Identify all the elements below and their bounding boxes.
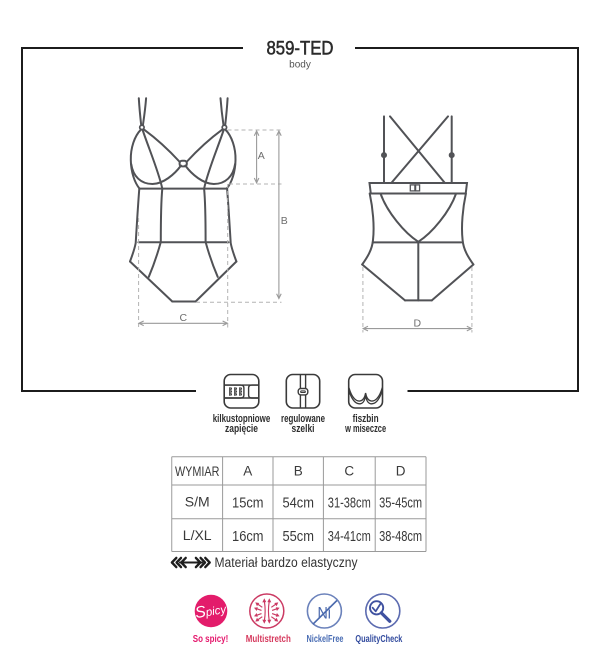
svg-text:B: B bbox=[294, 464, 303, 479]
svg-text:31-38cm: 31-38cm bbox=[328, 496, 371, 512]
svg-text:w miseczce: w miseczce bbox=[344, 423, 386, 435]
svg-text:15cm: 15cm bbox=[232, 496, 264, 512]
svg-text:szelki: szelki bbox=[292, 423, 315, 435]
svg-text:C: C bbox=[180, 312, 188, 324]
svg-text:So spicy!: So spicy! bbox=[193, 634, 229, 645]
svg-text:34-41cm: 34-41cm bbox=[328, 529, 371, 545]
svg-text:QualityCheck: QualityCheck bbox=[355, 634, 402, 645]
svg-text:35-45cm: 35-45cm bbox=[379, 496, 422, 512]
svg-text:S/M: S/M bbox=[185, 494, 210, 510]
svg-text:zapięcie: zapięcie bbox=[225, 423, 258, 435]
svg-text:55cm: 55cm bbox=[282, 529, 314, 545]
svg-text:NickelFree: NickelFree bbox=[307, 634, 344, 645]
svg-text:WYMIAR: WYMIAR bbox=[175, 464, 220, 479]
svg-text:D: D bbox=[396, 464, 406, 479]
svg-text:A: A bbox=[258, 150, 265, 162]
svg-text:38-48cm: 38-48cm bbox=[379, 529, 422, 545]
svg-text:Materiał bardzo elastyczny: Materiał bardzo elastyczny bbox=[215, 555, 358, 570]
svg-text:16cm: 16cm bbox=[232, 529, 264, 545]
svg-text:B: B bbox=[281, 215, 288, 227]
svg-text:859-TED: 859-TED bbox=[267, 39, 334, 60]
svg-text:D: D bbox=[414, 317, 422, 329]
svg-text:Multistretch: Multistretch bbox=[246, 634, 291, 645]
svg-text:54cm: 54cm bbox=[282, 496, 314, 512]
svg-text:A: A bbox=[243, 464, 252, 479]
svg-text:L/XL: L/XL bbox=[183, 527, 212, 543]
svg-text:body: body bbox=[289, 60, 311, 71]
svg-text:C: C bbox=[344, 464, 354, 479]
